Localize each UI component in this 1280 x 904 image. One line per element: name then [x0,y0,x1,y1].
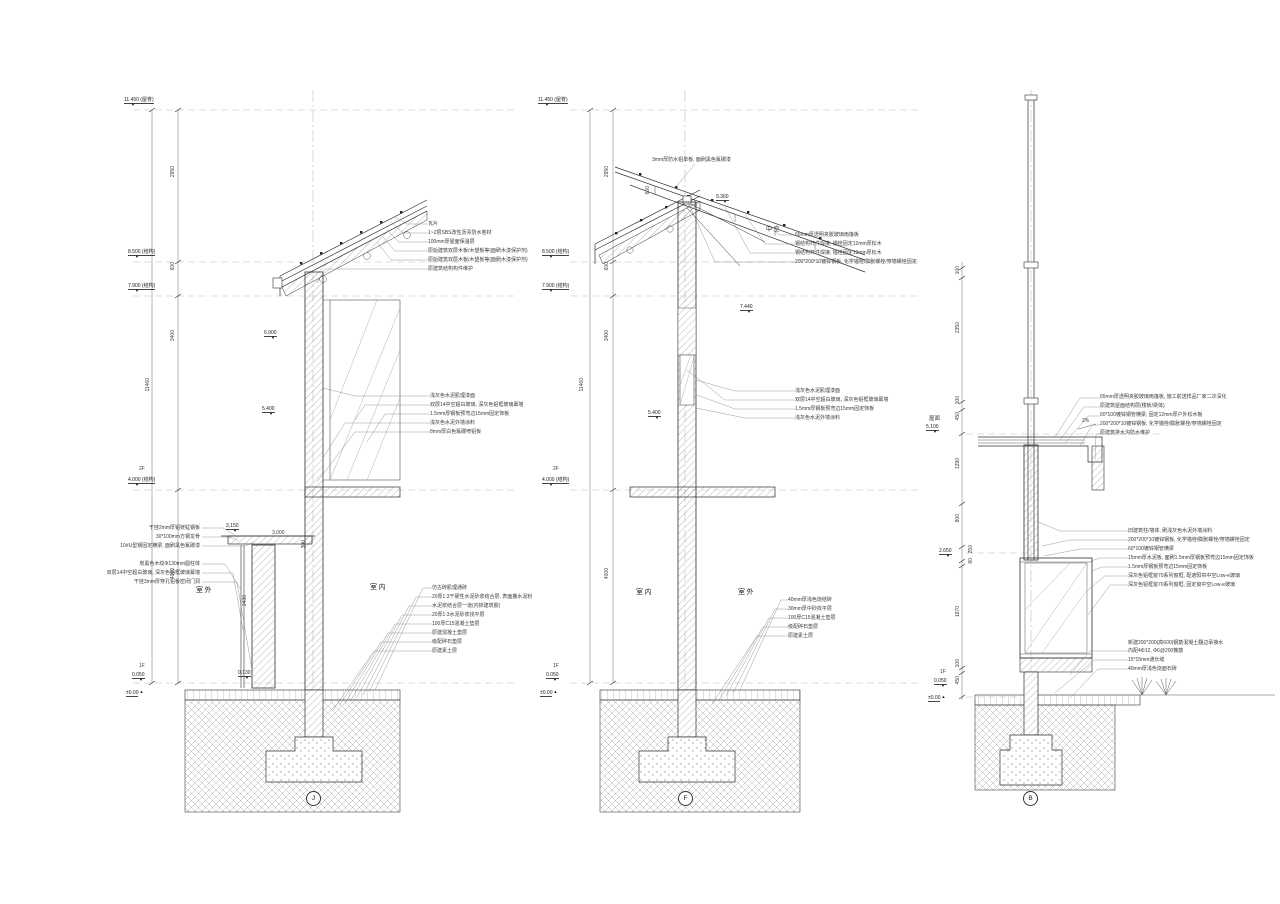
storefront-note: 双层14中空超白玻璃, 深灰色铝框玻璃幕墙 [60,571,200,577]
storefront-note: 炭黑色木纹Φ130mm圆柱体 [60,562,200,568]
elevation-value: ±0.00 [126,690,138,697]
floor-label: 1F [553,664,559,670]
dim-label: 2430 [242,595,248,606]
window-note: 深灰色铝框窗70系列窗框, 配遮阳帘中空Low-e玻璃 [1128,574,1240,580]
floor-note: 100厚C15混凝土垫层 [432,622,480,628]
elevation-value: 4.000 (结构) [542,477,569,484]
elevation-marker: 0.130▼ [238,670,251,679]
wall-note: 8mm厚白色氟碳喷铝板 [430,430,481,436]
dimension-line [587,108,616,685]
section-tag-j: J [306,791,321,806]
roof-note: 瓦片 [428,222,438,228]
column-hatch [1024,672,1038,735]
wall [305,272,323,690]
floor-slab-2f [630,487,775,497]
roof-note: 65mm厚透明夹胶玻璃雨篷板, 施工前送样品厂家二次深化 [1100,395,1227,401]
wall-note: 浅灰色水泥肌理漆面 [795,389,840,395]
floor-note: 100厚C15混凝土垫层 [788,616,836,622]
wall [678,202,696,690]
floor-note: 原建素土层 [432,649,457,655]
section-tag-f: F [678,791,693,806]
dim-label: 3400 [604,330,610,341]
dim-label: 100 [955,396,961,404]
window-note: 旧建筑柱/墙体, 刷浅灰色水泥外墙涂料 [1128,529,1212,535]
dim-label: 3,000 [272,531,285,537]
floor-label: 1F [940,670,946,676]
base-note: 15*15mm通长缝 [1128,658,1164,664]
window-note: 15mm厚水泥板, 面刷1.5mm厚钢板预弯边15mm固定饰板 [1128,556,1254,562]
floor-note: 级配碎石垫层 [432,640,462,646]
glazing-panel [678,308,696,405]
section-j-drawing [55,90,525,820]
level-marker-icon: ▲ [553,690,557,694]
elevation-value: ±0.00 [928,695,940,702]
floor-note: 级配碎石垫层 [788,625,818,631]
elevation-marker: 11.450 (屋脊)▼ [124,96,154,106]
dim-label: 600 [645,186,651,194]
dim-label: 300 [301,540,307,548]
roof-slab [978,424,1104,490]
window-note: 1.5mm厚钢板预弯边15mm固定饰板 [1128,565,1207,571]
wall-note: 浅灰色水泥外墙涂料 [795,416,840,422]
dim-label: 2350 [955,322,961,333]
elevation-marker: 7.440▼ [740,304,753,313]
elevation-value: ±0.00 [540,690,552,697]
elevation-value: 7.900 (结构) [128,283,155,290]
floor-note: 20厚1:3干硬性水泥砂浆结合层, 表面撒水泥粉 [432,595,532,601]
roof-note: 1~2层SBS改性沥青防水卷材 [428,231,492,237]
roof [273,200,427,296]
roof-note: 原建筑排水沟防水维护 [1100,431,1150,437]
floor-label: 2F [139,467,145,473]
roof-note: 200*200*10镀锌钢板, 化学锚栓/膨胀螺栓/穿墙螺栓固定 [1100,422,1222,428]
elevation-marker: 0.050▼ [132,672,145,681]
elevation-marker: 8.500 (结构)▼ [542,248,569,258]
grass [1132,677,1176,695]
pavement [975,695,1140,705]
room-label-indoor: 室内 [370,582,387,592]
dim-label: 100 [955,659,961,667]
dim-label: 11460 [579,378,585,392]
dim-label: 3400 [170,330,176,341]
storefront-note: 30*100mm方钢龙骨 [60,535,200,541]
window-note: 60*100镀锌钢管横梁 [1128,547,1174,553]
wall-note: 浅灰色水泥外墙涂料 [430,421,475,427]
elevation-marker: 5.400▼ [262,406,275,415]
window-note: 深灰色铝框窗70系列窗框, 固定窗中空Low-e玻璃 [1128,583,1235,589]
dim-label: 2950 [170,166,176,177]
roof-note: 3mm厚防水铝单板, 面刷黑色氟碳漆 [652,158,731,164]
window-note: 200*200*10镀锌钢板, 化学锚栓/膨胀螺栓/穿墙螺栓固定 [1128,538,1250,544]
glazing-panel [323,300,400,480]
floor-label: 1F [139,664,145,670]
section-tag-b: B [1023,791,1038,806]
steel-strut [687,202,765,242]
storefront-note: 10#U型钢固定横梁, 面刷黑色氟碳漆 [60,544,200,550]
elevation-value: 7.900 (结构) [542,283,569,290]
wall-note: 双层14中空超白玻璃, 深灰色铝框玻璃幕墙 [795,398,888,404]
dimension-line [149,108,181,685]
roof-level-label: 屋面 [929,416,940,422]
pavement [185,690,400,700]
base-note: 40mm厚浅色烧面石砖 [1128,667,1177,673]
section-f-drawing [535,90,925,820]
elevation-marker: 4.000 (结构)▼ [542,476,569,486]
canopy-note: 65mm厚透明夹胶玻璃雨篷板 [795,233,859,239]
elevation-marker: 9.360▼ [716,194,729,203]
elevation-marker: 7.900 (结构)▼ [542,282,569,292]
dim-label: 600 [604,262,610,270]
floor-note: 原建混凝土垫层 [432,631,467,637]
dim-label: 11460 [145,378,151,392]
room-label-indoor: 室内 [636,587,653,597]
wall-note: 1.5mm厚钢板预弯边15mm固定饰板 [795,407,874,413]
section-b-drawing [930,90,1280,820]
floor-note: 30mm厚中砂找平层 [788,607,832,613]
canopy-note: 钢结构杆件焊接, 锚栓固定13mm厚松木 [795,251,882,257]
curb [1020,658,1092,672]
base-note: 新建200*200(高600)钢筋混凝土翻边承接水 [1128,641,1223,647]
canopy-note: 200*200*10镀锌钢板, 化学锚栓/膨胀螺栓/穿墙螺栓固定 [795,260,917,266]
dim-label: 100 [955,266,961,274]
dim-label: 1970 [955,606,961,617]
slope-label: 2% [1082,419,1089,425]
elevation-value: 4.000 (结构) [128,477,155,484]
floor-note: 20厚1:3水泥砂浆找平层 [432,613,485,619]
dim-label: 800 [955,514,961,522]
floor-note: 水泥浆结合层一道(内掺建筑胶) [432,604,500,610]
dim-label: 2950 [604,166,610,177]
dim-label: 250 [968,545,974,553]
elevation-marker: 4.000 (结构)▼ [128,476,155,486]
floor-note: 40mm厚浅色烧结砖 [788,598,832,604]
column-hatch [305,690,323,737]
wall [1024,445,1038,560]
dim-label: 450 [955,676,961,684]
roof-note: 原建筑结构构件维护 [428,267,473,273]
elevation-marker: ±0.00▲ [540,690,557,697]
level-marker-icon: ▲ [941,695,945,699]
base-note: 内配4Φ12, Φ6@200箍筋 [1128,649,1183,655]
elevation-marker: 5.400▼ [648,410,661,419]
roof-note: 60*100镀锌钢管横梁, 固定12mm厚户外松木板 [1100,413,1203,419]
elevation-marker: 5.100▼ [926,424,939,433]
pavement [600,690,800,700]
elevation-marker: 0.050▼ [934,678,947,687]
dim-label: 80 [968,558,974,564]
elevation-value: 8.500 (结构) [542,249,569,256]
elevation-marker: 2.650▼ [939,548,952,557]
elevation-marker: ±0.00▲ [126,690,143,697]
drawing-sheet: 11.450 (屋脊)▼ 8.500 (结构)▼ 7.900 (结构)▼ 2F … [0,0,1280,904]
elevation-value: 11.450 (屋脊) [538,97,568,104]
floor-note: 仿古砖肌理通砖 [432,586,467,592]
storefront-note: 干挂3mm厚穿孔铝板密闭门洞 [60,580,200,586]
roof-note: 原始建筑双层木板/木望板等(面刷木漆保护剂) [428,258,528,264]
wall-note: 浅灰色水泥肌理漆面 [430,394,475,400]
dim-label: 4000 [604,568,610,579]
elevation-value: 8.500 (结构) [128,249,155,256]
room-label-outdoor: 室外 [196,585,213,595]
dim-marker: 3,150▼ [226,523,239,532]
elevation-marker: 8.500 (结构)▼ [128,248,155,258]
void-label: 中空 [766,224,781,233]
level-marker-icon: ▲ [139,690,143,694]
roof-note: 原建筑屋面结构层(楼板/梁体) [1100,404,1165,410]
wall-note: 1.5mm厚钢板预弯边15mm固定饰板 [430,412,509,418]
storefront-note: 干挂2mm厚铝镁锰钢板 [60,526,200,532]
elevation-marker: 0.050▼ [546,672,559,681]
elevation-value: 11.450 (屋脊) [124,97,154,104]
roof-note: 100mm厚屋面保温层 [428,240,475,246]
floor-note: 原建素土层 [788,634,813,640]
room-label-outdoor: 室外 [738,587,755,597]
canopy-note: 钢结构杆件焊接, 锚栓固定12mm厚松木 [795,242,882,248]
elevation-marker: 6.900▼ [264,330,277,339]
roof-note: 原始建筑双层木板/木望板等(面刷木漆保护剂) [428,249,528,255]
floor-label: 2F [553,467,559,473]
elevation-marker: ±0.00▲ [928,695,945,702]
floor-slab-2f [305,487,400,497]
elevation-marker: 7.900 (结构)▼ [128,282,155,292]
elevation-marker: 11.450 (屋脊)▼ [538,96,568,106]
column-hatch [678,690,696,737]
dim-label: 600 [170,262,176,270]
dim-label: 1290 [955,458,961,469]
storefront [241,545,275,688]
wall-note: 双层14中空超白玻璃, 深灰色铝框玻璃幕墙 [430,403,523,409]
dim-label: 450 [955,412,961,420]
